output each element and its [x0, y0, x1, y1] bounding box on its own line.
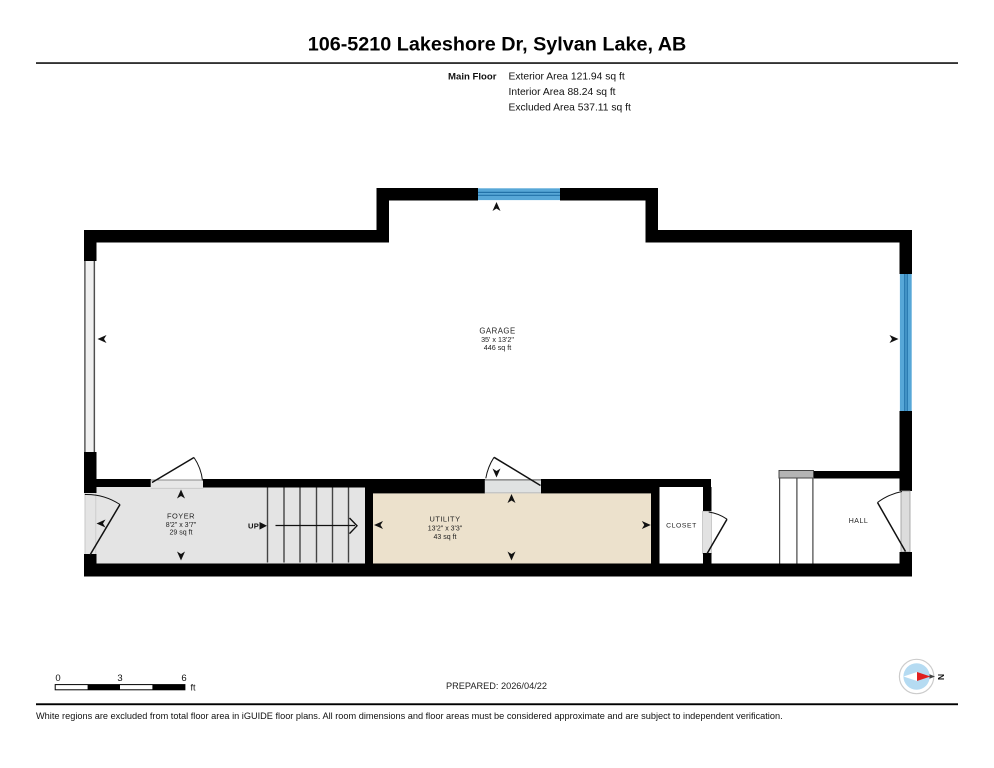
svg-text:FOYER: FOYER — [167, 512, 195, 521]
svg-text:Interior Area 88.24 sq ft: Interior Area 88.24 sq ft — [509, 87, 616, 98]
svg-text:0: 0 — [55, 673, 60, 684]
svg-text:13'2" x 3'3": 13'2" x 3'3" — [428, 526, 463, 533]
svg-text:29 sq ft: 29 sq ft — [170, 530, 193, 537]
svg-text:HALL: HALL — [849, 518, 869, 525]
svg-text:106-5210 Lakeshore Dr, Sylvan: 106-5210 Lakeshore Dr, Sylvan Lake, AB — [308, 34, 687, 56]
svg-text:6: 6 — [181, 673, 186, 684]
svg-text:N: N — [936, 674, 946, 680]
svg-text:PREPARED: 2026/04/22: PREPARED: 2026/04/22 — [446, 681, 547, 691]
svg-text:UTILITY: UTILITY — [429, 515, 460, 524]
svg-text:Main Floor: Main Floor — [448, 72, 497, 83]
svg-text:CLOSET: CLOSET — [666, 523, 697, 530]
svg-text:Exterior Area 121.94 sq ft: Exterior Area 121.94 sq ft — [509, 72, 625, 83]
svg-text:3: 3 — [117, 673, 122, 684]
svg-text:43 sq ft: 43 sq ft — [434, 534, 457, 541]
svg-text:White regions are excluded fro: White regions are excluded from total fl… — [36, 711, 783, 721]
svg-text:ft: ft — [191, 683, 197, 693]
svg-text:UP: UP — [248, 522, 259, 531]
svg-text:8'2" x 3'7": 8'2" x 3'7" — [166, 522, 197, 529]
svg-text:Excluded Area 537.11 sq ft: Excluded Area 537.11 sq ft — [509, 102, 631, 113]
svg-text:446 sq ft: 446 sq ft — [484, 343, 512, 352]
